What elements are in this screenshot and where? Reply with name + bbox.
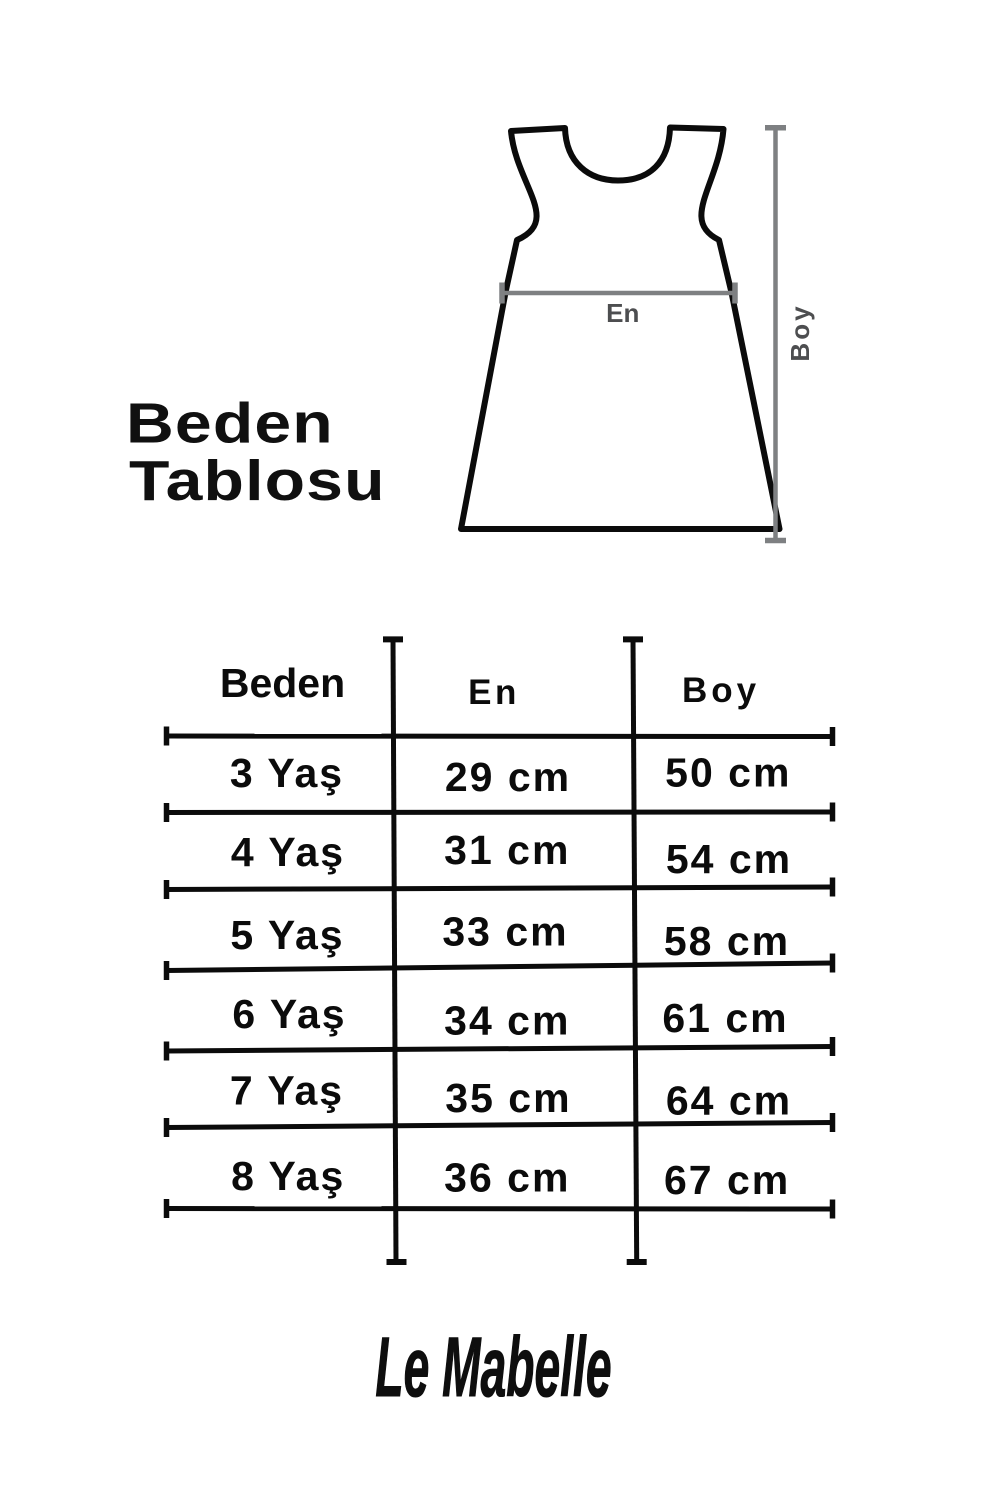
svg-text:En: En — [606, 298, 639, 328]
svg-text:67 cm: 67 cm — [664, 1157, 790, 1203]
svg-text:Beden: Beden — [126, 392, 334, 456]
svg-text:33 cm: 33 cm — [442, 909, 568, 955]
svg-text:36 cm: 36 cm — [444, 1155, 570, 1201]
svg-text:3 Yaş: 3 Yaş — [230, 750, 344, 796]
svg-text:34 cm: 34 cm — [444, 998, 570, 1044]
svg-text:64 cm: 64 cm — [666, 1078, 792, 1124]
svg-text:Le Mabelle: Le Mabelle — [375, 1322, 611, 1415]
svg-text:50 cm: 50 cm — [665, 750, 791, 796]
svg-text:31 cm: 31 cm — [444, 827, 570, 873]
svg-text:29 cm: 29 cm — [445, 754, 571, 800]
svg-text:6 Yaş: 6 Yaş — [232, 991, 346, 1037]
svg-text:35 cm: 35 cm — [445, 1075, 571, 1121]
svg-text:8 Yaş: 8 Yaş — [231, 1153, 345, 1199]
svg-text:En: En — [468, 673, 520, 712]
svg-text:61 cm: 61 cm — [662, 995, 788, 1041]
svg-text:5 Yaş: 5 Yaş — [230, 912, 344, 958]
svg-text:Boy: Boy — [785, 303, 815, 361]
svg-text:Beden: Beden — [220, 660, 345, 706]
svg-text:Boy: Boy — [682, 671, 760, 710]
svg-text:4 Yaş: 4 Yaş — [231, 829, 345, 875]
svg-text:7 Yaş: 7 Yaş — [230, 1068, 344, 1114]
svg-text:58 cm: 58 cm — [664, 918, 790, 964]
svg-text:54 cm: 54 cm — [666, 836, 792, 882]
svg-text:Tablosu: Tablosu — [129, 449, 386, 513]
